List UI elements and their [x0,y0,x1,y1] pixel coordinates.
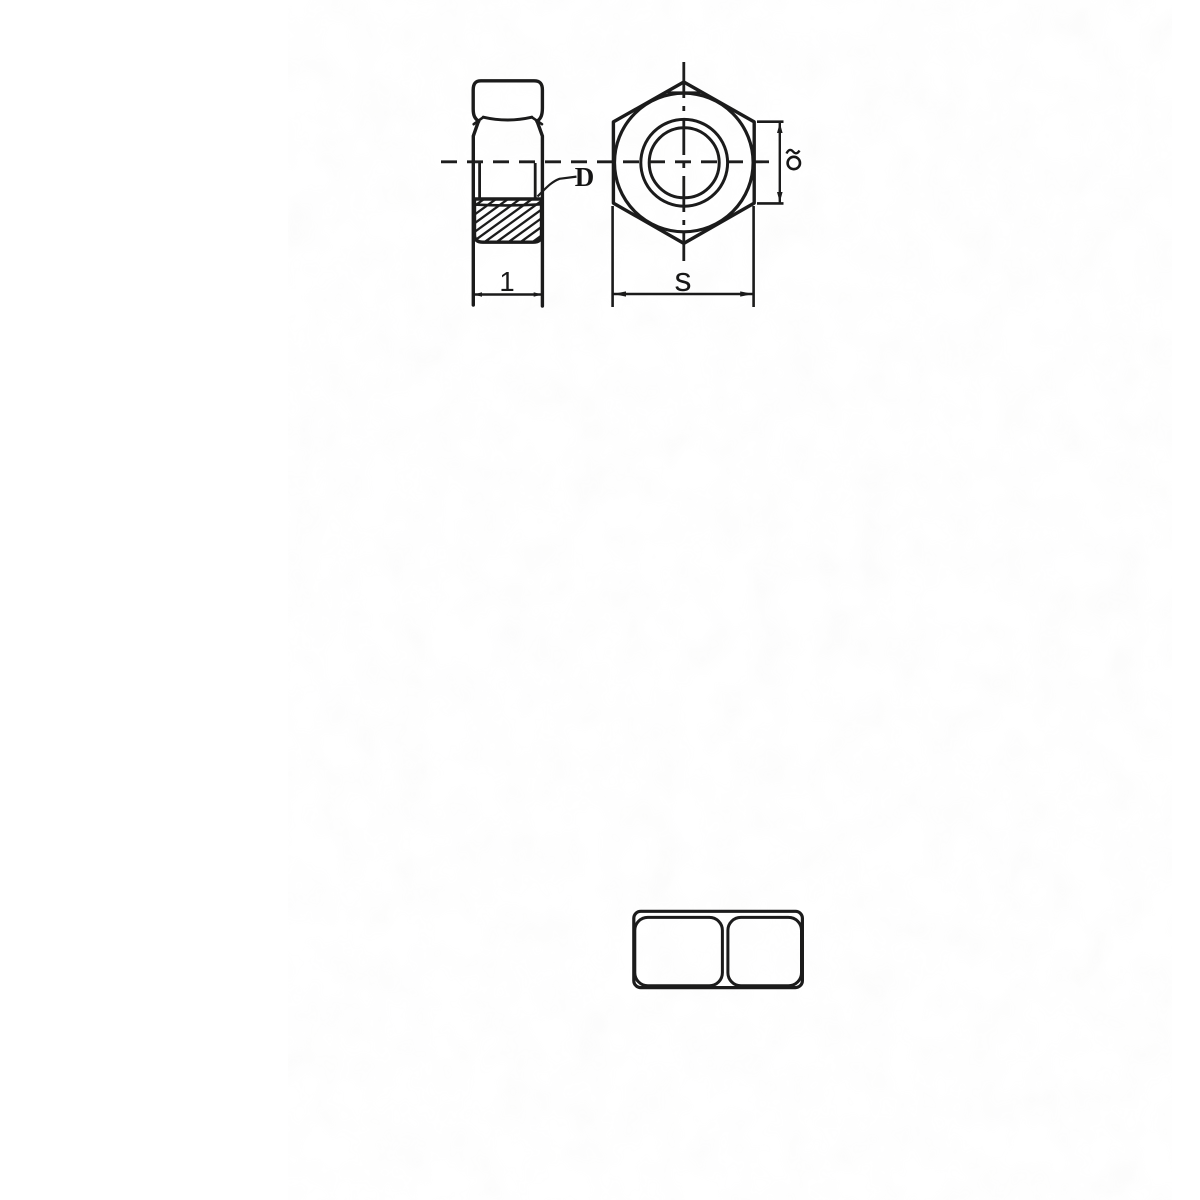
svg-text:1: 1 [499,266,514,297]
svg-text:D: D [575,162,595,192]
svg-text:s: s [675,261,692,299]
